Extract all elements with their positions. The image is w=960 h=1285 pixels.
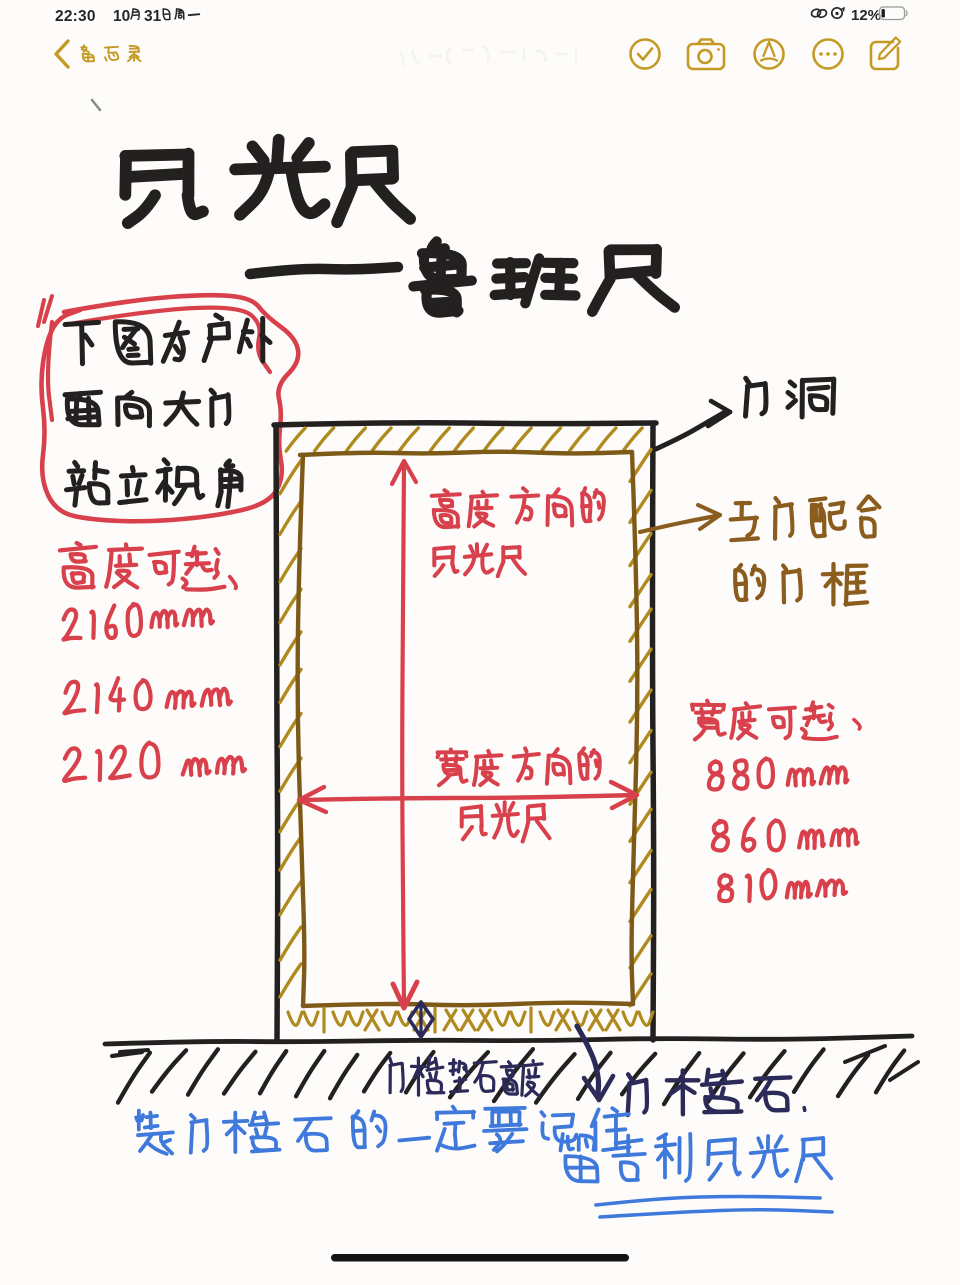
- svg-text:12%: 12%: [851, 7, 881, 24]
- svg-text:22:30: 22:30: [55, 8, 96, 25]
- svg-text:31: 31: [144, 8, 162, 25]
- svg-text:10: 10: [113, 8, 130, 25]
